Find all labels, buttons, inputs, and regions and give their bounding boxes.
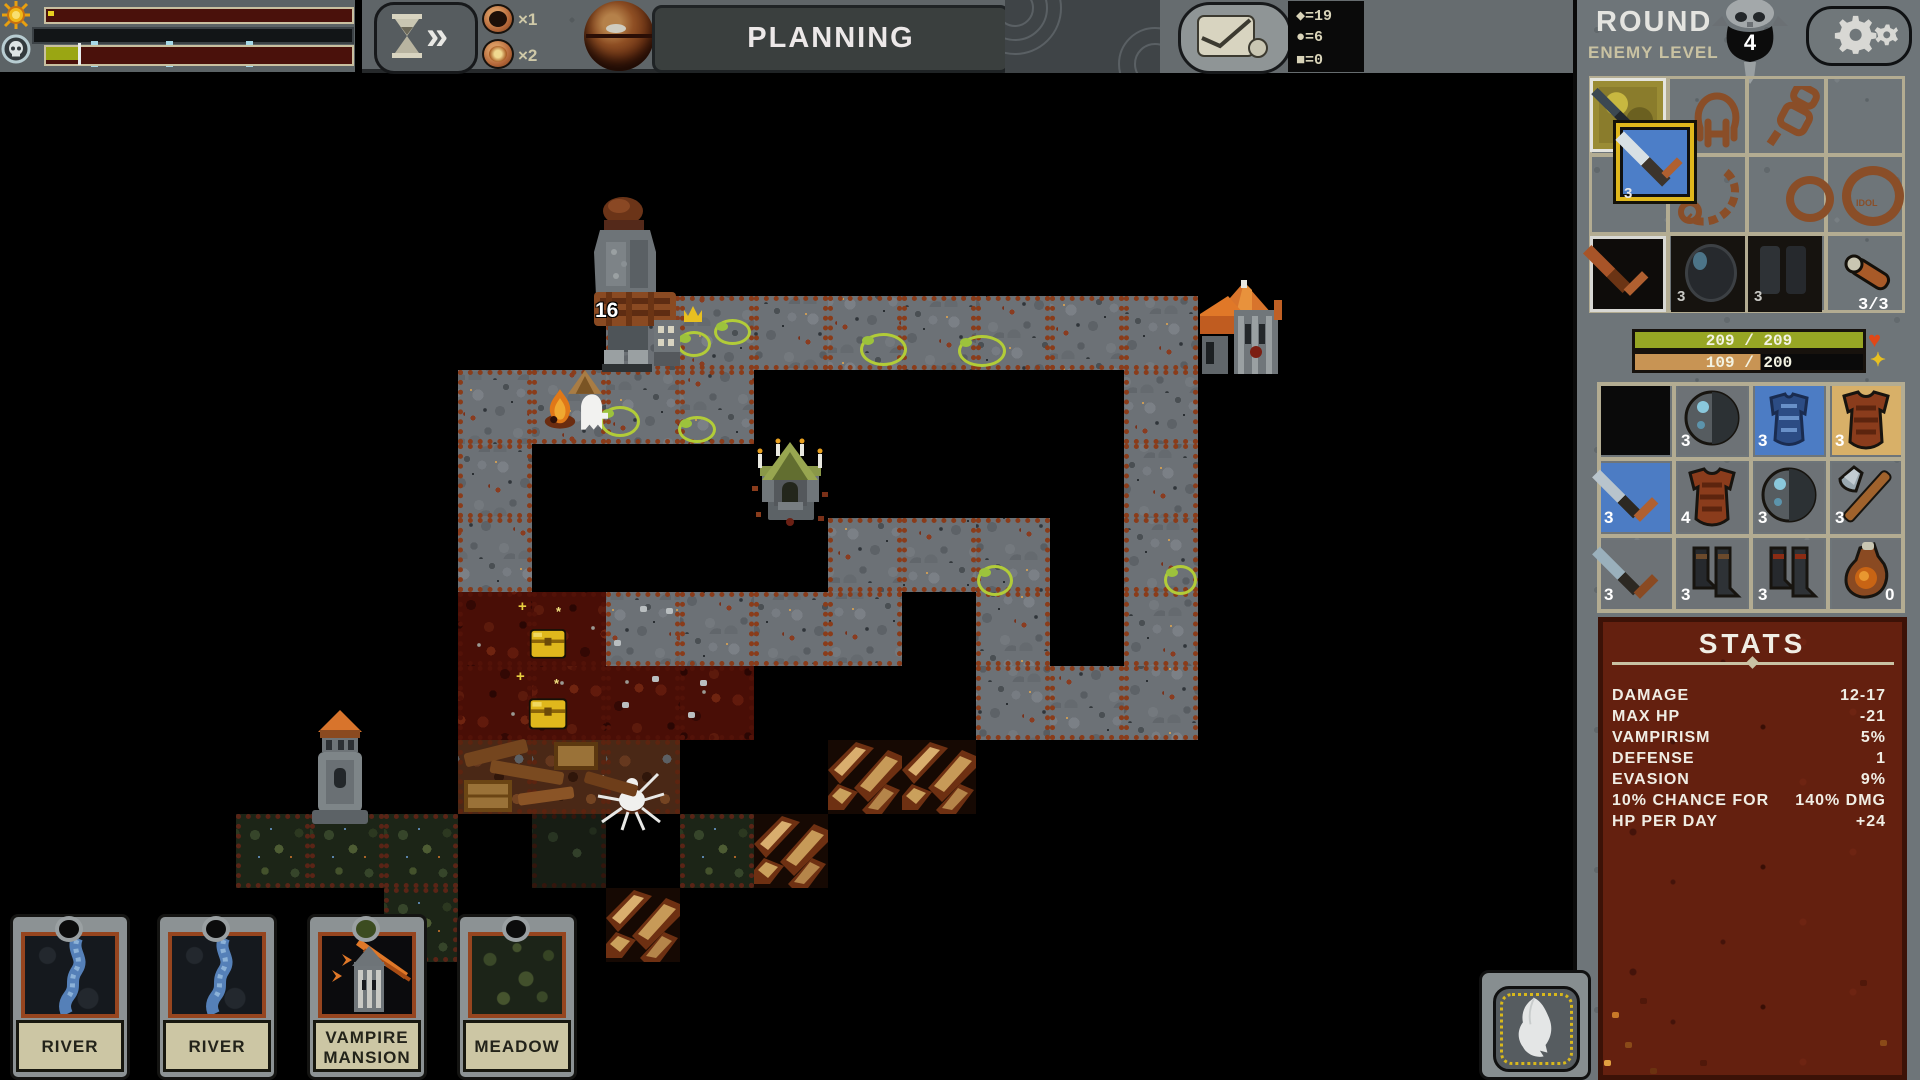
svg-text:4: 4 xyxy=(1744,30,1757,55)
